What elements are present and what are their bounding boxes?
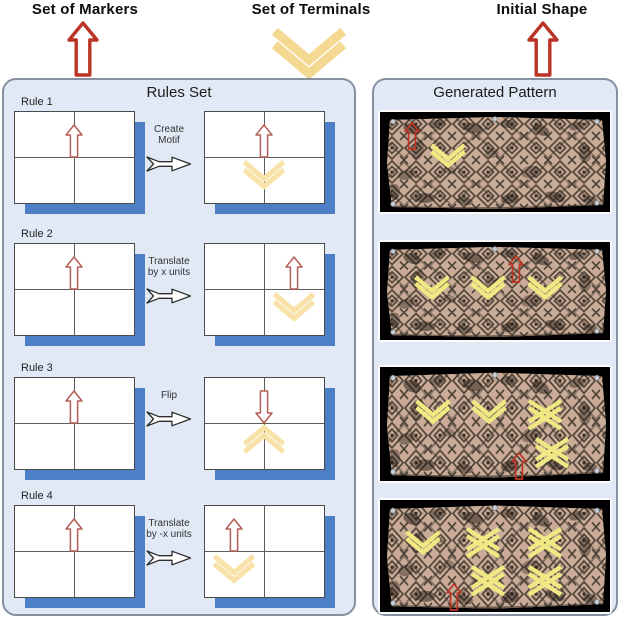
rule-row: Rule 2Translateby x units (4, 228, 354, 352)
kuba-cloth-photo (380, 500, 610, 612)
terminals-heading: Set of Terminals (231, 1, 391, 18)
transform-label: Translateby x units (148, 256, 190, 278)
generated-pattern-title: Generated Pattern (374, 84, 616, 101)
rule-card-before (14, 505, 146, 609)
transform-label: Flip (161, 390, 177, 401)
rule-card-before (14, 243, 146, 347)
rule-arrow-icon (146, 547, 192, 569)
rule-transform: Flip (133, 377, 205, 481)
rule-label: Rule 2 (21, 228, 53, 240)
rule-transform: CreateMotif (133, 111, 205, 215)
generated-pattern-panel: Generated Pattern (372, 78, 618, 616)
rule-label: Rule 1 (21, 96, 53, 108)
rule-row: Rule 1CreateMotif (4, 96, 354, 220)
rule-label: Rule 4 (21, 490, 53, 502)
kuba-cloth-photo (380, 112, 610, 212)
rule-card-after (204, 377, 336, 481)
kuba-cloth-photo (380, 242, 610, 340)
rules-set-panel: Rules Set Rule 1CreateMotifRule 2Transla… (2, 78, 356, 616)
rule-card-after (204, 505, 336, 609)
terminal-chevron-icon (256, 25, 362, 79)
rule-row: Rule 3Flip (4, 362, 354, 486)
transform-label: Translateby -x units (146, 518, 192, 540)
rule-arrow-icon (146, 408, 192, 430)
rule-transform: Translateby -x units (133, 505, 205, 609)
rule-card-before (14, 377, 146, 481)
initial-shape-arrow-icon (525, 21, 561, 77)
marker-arrow-icon (65, 21, 101, 77)
pattern-image (378, 110, 612, 214)
rule-arrow-icon (146, 285, 192, 307)
initial-shape-heading: Initial Shape (462, 1, 620, 18)
kuba-cloth-photo (380, 367, 610, 481)
rule-arrow-icon (146, 153, 192, 175)
markers-heading: Set of Markers (5, 1, 165, 18)
rule-label: Rule 3 (21, 362, 53, 374)
rule-transform: Translateby x units (133, 243, 205, 347)
rule-card-before (14, 111, 146, 215)
transform-label: CreateMotif (154, 124, 184, 146)
rule-row: Rule 4Translateby -x units (4, 490, 354, 614)
rule-card-after (204, 111, 336, 215)
rule-card-after (204, 243, 336, 347)
pattern-image (378, 498, 612, 614)
pattern-image (378, 240, 612, 342)
pattern-image (378, 365, 612, 483)
